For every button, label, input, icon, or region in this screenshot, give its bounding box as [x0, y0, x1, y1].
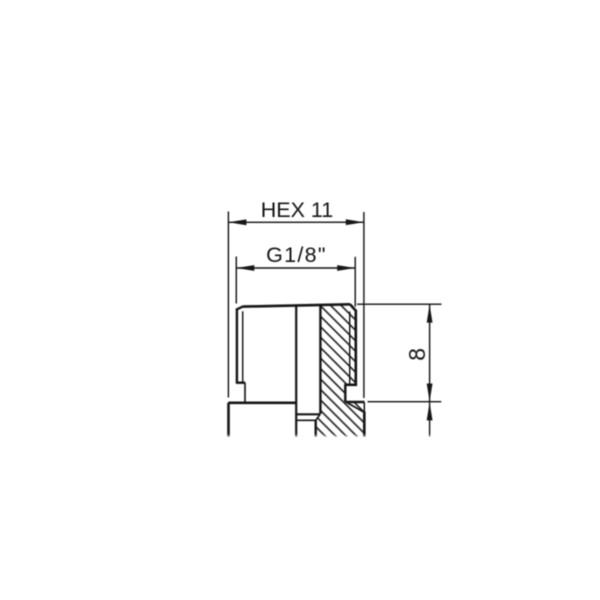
svg-text:8: 8 [404, 348, 430, 361]
svg-text:G1/8": G1/8" [266, 243, 327, 267]
svg-text:HEX 11: HEX 11 [261, 198, 334, 222]
